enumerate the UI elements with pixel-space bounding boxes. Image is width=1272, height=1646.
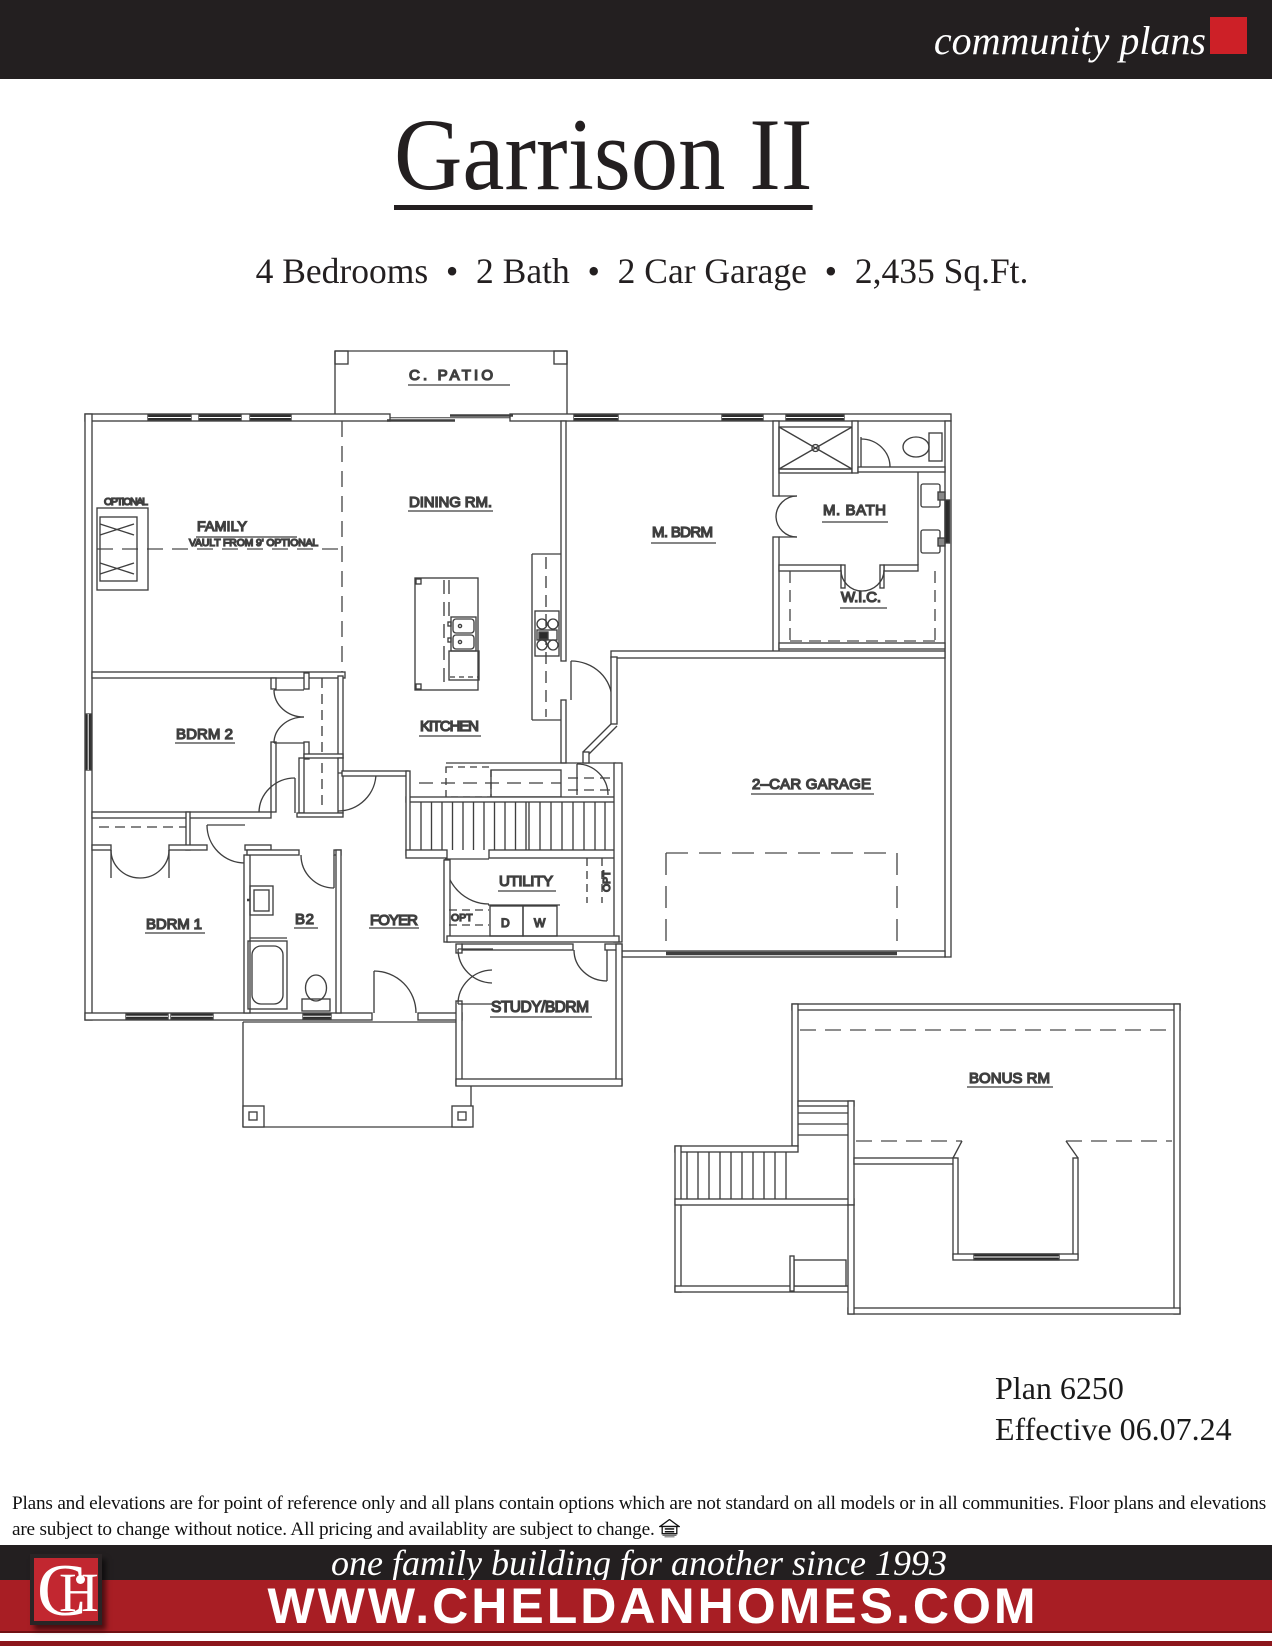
svg-text:B2: B2 [295, 911, 314, 928]
svg-text:FOYER: FOYER [370, 912, 418, 929]
svg-text:2–CAR GARAGE: 2–CAR GARAGE [752, 776, 871, 793]
svg-text:UTILITY: UTILITY [499, 873, 553, 890]
svg-text:DINING RM.: DINING RM. [409, 494, 492, 511]
svg-text:STUDY/BDRM: STUDY/BDRM [491, 999, 589, 1016]
svg-text:BDRM 2: BDRM 2 [176, 726, 233, 743]
svg-text:W.I.C.: W.I.C. [841, 589, 881, 606]
svg-text:FAMILY: FAMILY [197, 519, 248, 535]
svg-text:M. BATH: M. BATH [823, 502, 886, 519]
svg-text:D: D [501, 916, 510, 930]
svg-text:OPT: OPT [601, 870, 613, 892]
svg-text:M. BDRM: M. BDRM [652, 524, 713, 541]
svg-text:C. PATIO: C. PATIO [409, 367, 493, 384]
svg-text:W: W [534, 916, 546, 930]
svg-text:KITCHEN: KITCHEN [420, 718, 479, 735]
svg-text:VAULT FROM 9' OPTIONAL: VAULT FROM 9' OPTIONAL [189, 538, 318, 549]
svg-text:OPTIONAL: OPTIONAL [104, 496, 148, 508]
svg-text:BONUS RM: BONUS RM [969, 1070, 1050, 1087]
svg-text:BDRM 1: BDRM 1 [146, 916, 202, 933]
svg-text:OPT: OPT [451, 912, 473, 924]
